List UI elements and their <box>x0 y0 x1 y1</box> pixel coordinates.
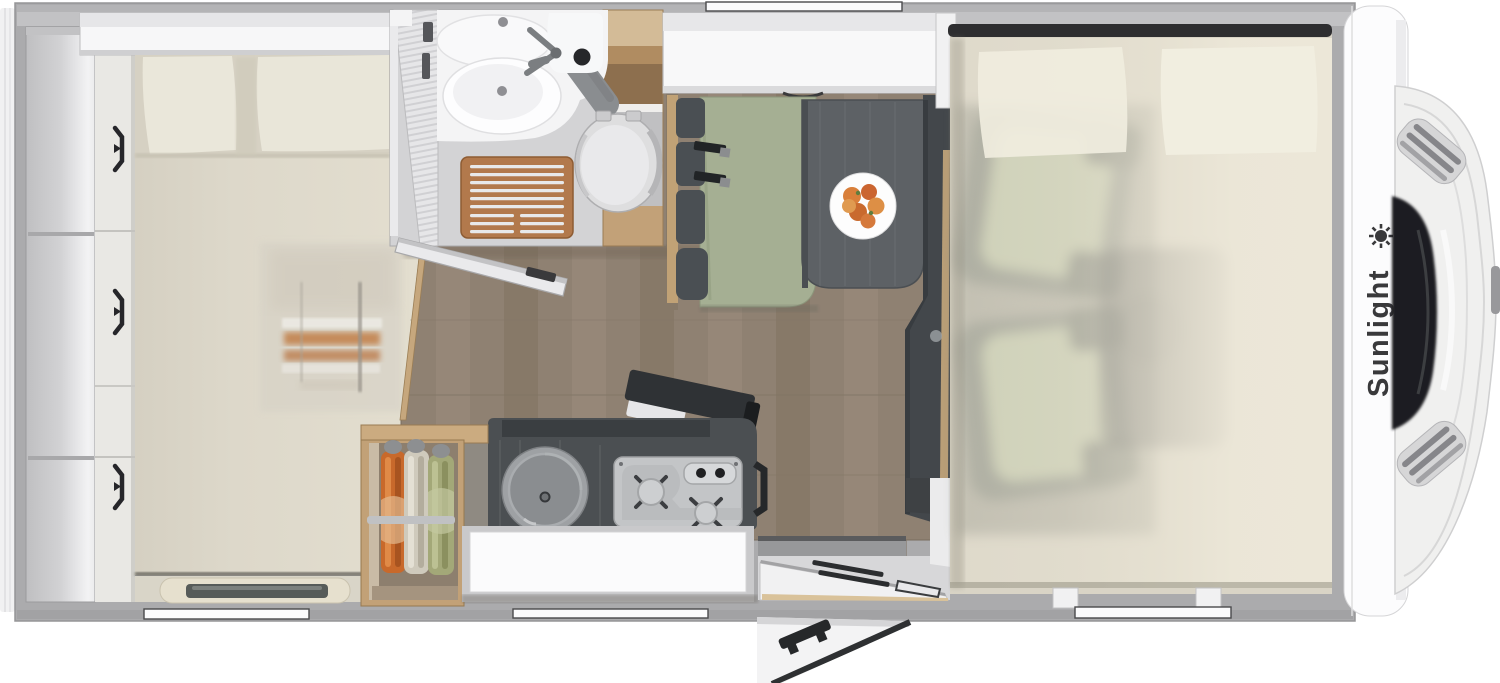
svg-text:Sunlight: Sunlight <box>1363 269 1395 397</box>
